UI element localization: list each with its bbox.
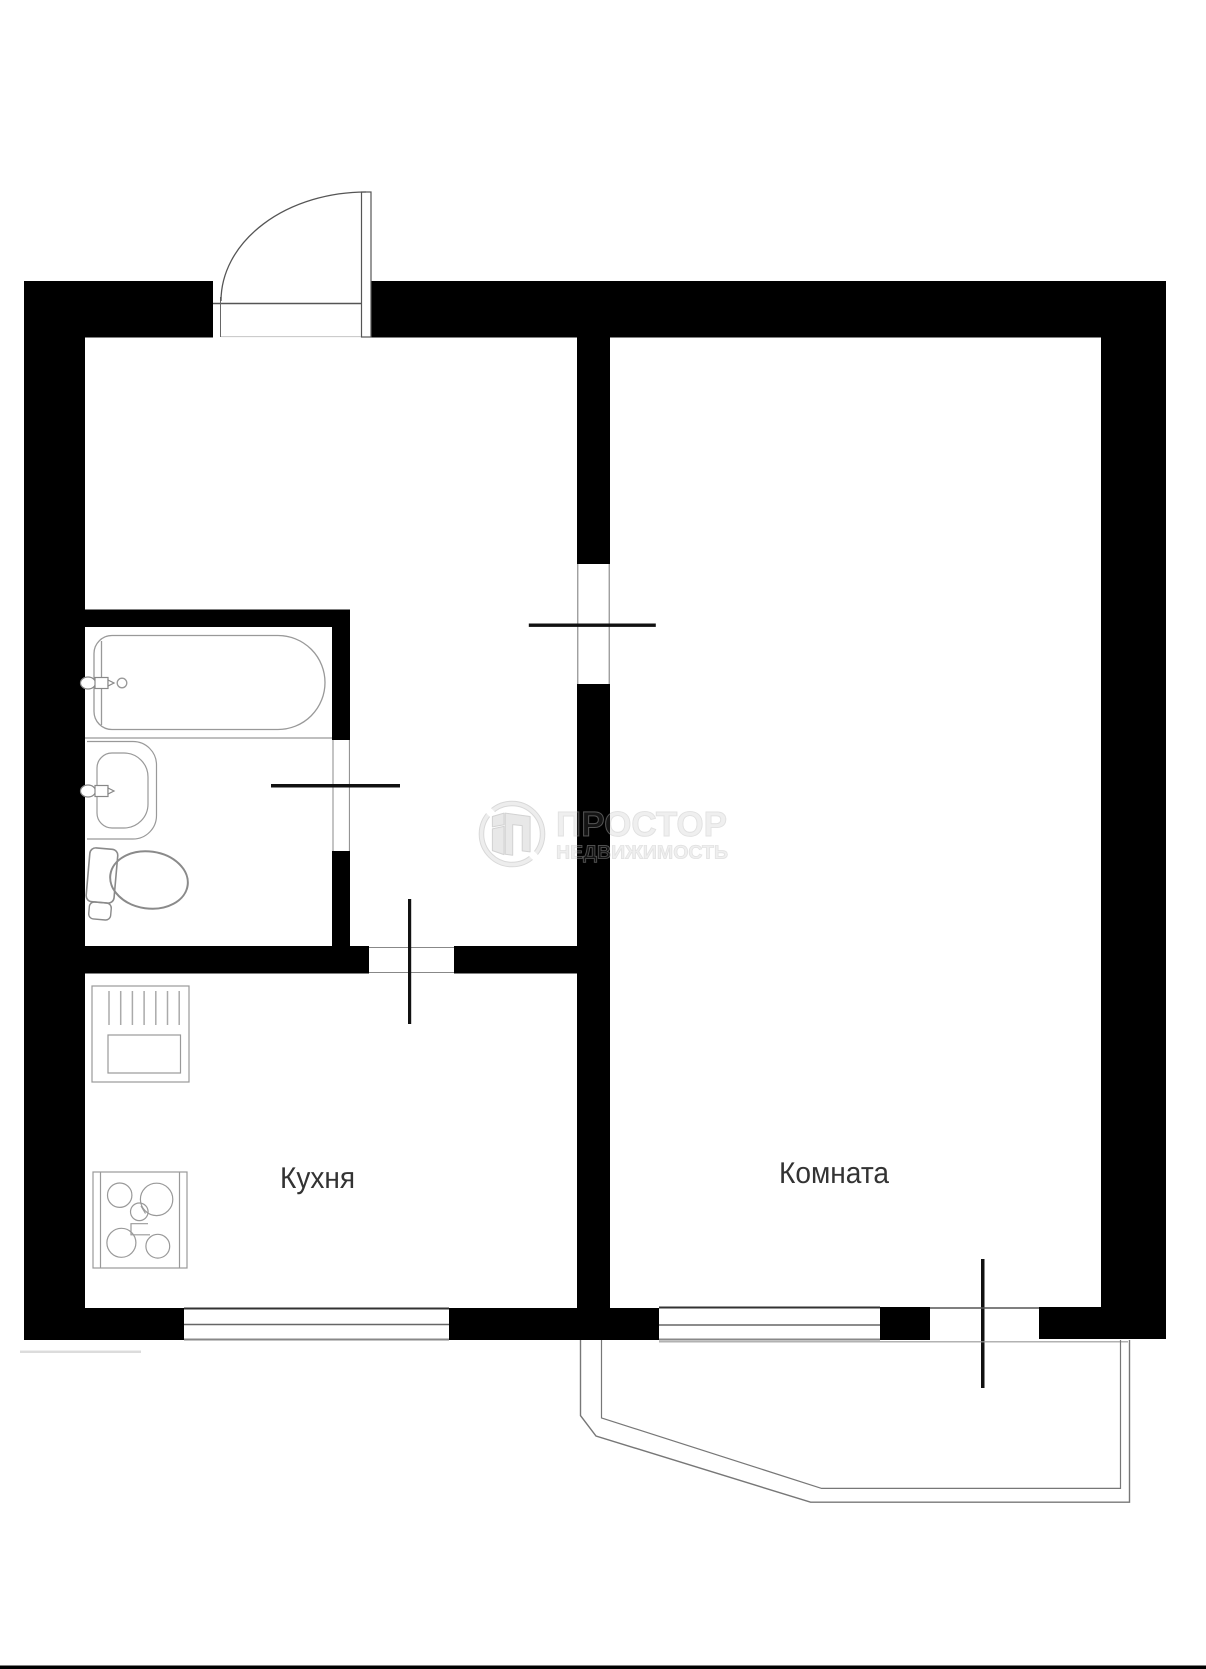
svg-text:ПРОСТОР: ПРОСТОР (556, 805, 727, 844)
svg-text:НЕДВИЖИМОСТЬ: НЕДВИЖИМОСТЬ (556, 843, 728, 864)
svg-text:Кухня: Кухня (280, 1162, 355, 1195)
svg-text:Комната: Комната (779, 1157, 889, 1190)
